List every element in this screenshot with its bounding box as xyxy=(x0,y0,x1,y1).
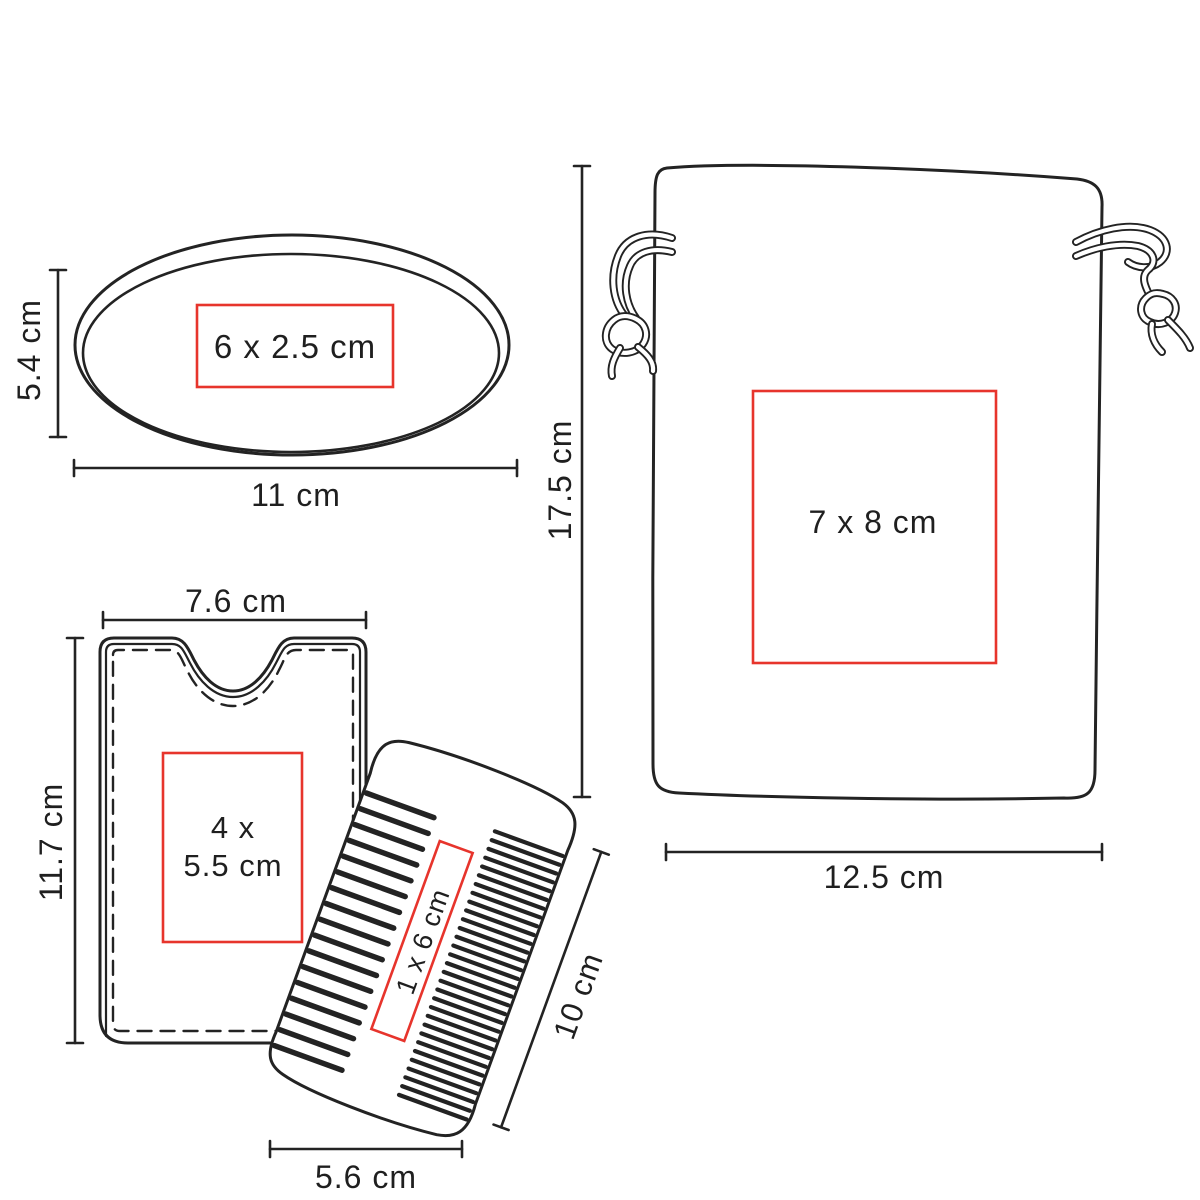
sleeve-width-label: 7.6 cm xyxy=(185,583,287,619)
product-dimensions-diagram: 4 x 5.5 cm 7.6 cm 11.7 cm 1 x 6 cm xyxy=(0,0,1200,1200)
comb-width-label: 5.6 cm xyxy=(315,1159,417,1195)
mirror-width-dim-line xyxy=(74,460,517,476)
comb-width-dim-line xyxy=(270,1141,462,1157)
pouch-width-label: 12.5 cm xyxy=(824,859,945,895)
mirror-height-dim-line xyxy=(50,270,66,437)
mirror-width-label: 11 cm xyxy=(251,477,341,513)
sleeve-height-label: 11.7 cm xyxy=(33,783,69,901)
pouch-width-dim-line xyxy=(666,844,1102,860)
mirror-figure: 6 x 2.5 cm 5.4 cm 11 cm xyxy=(11,235,517,513)
pouch-height-label: 17.5 cm xyxy=(542,420,578,541)
pouch-figure: 7 x 8 cm 17.5 cm 12.5 cm xyxy=(542,165,1190,895)
sleeve-print-area-label-line1: 4 x xyxy=(211,810,255,845)
sleeve-print-area-label-line2: 5.5 cm xyxy=(183,848,282,883)
pouch-print-area-label: 7 x 8 cm xyxy=(809,504,938,540)
mirror-print-area-label: 6 x 2.5 cm xyxy=(214,328,376,365)
sleeve-height-dim-line xyxy=(67,638,83,1043)
comb-length-label: 10 cm xyxy=(546,948,609,1044)
mirror-height-label: 5.4 cm xyxy=(11,299,47,401)
pouch-outline xyxy=(653,165,1102,799)
